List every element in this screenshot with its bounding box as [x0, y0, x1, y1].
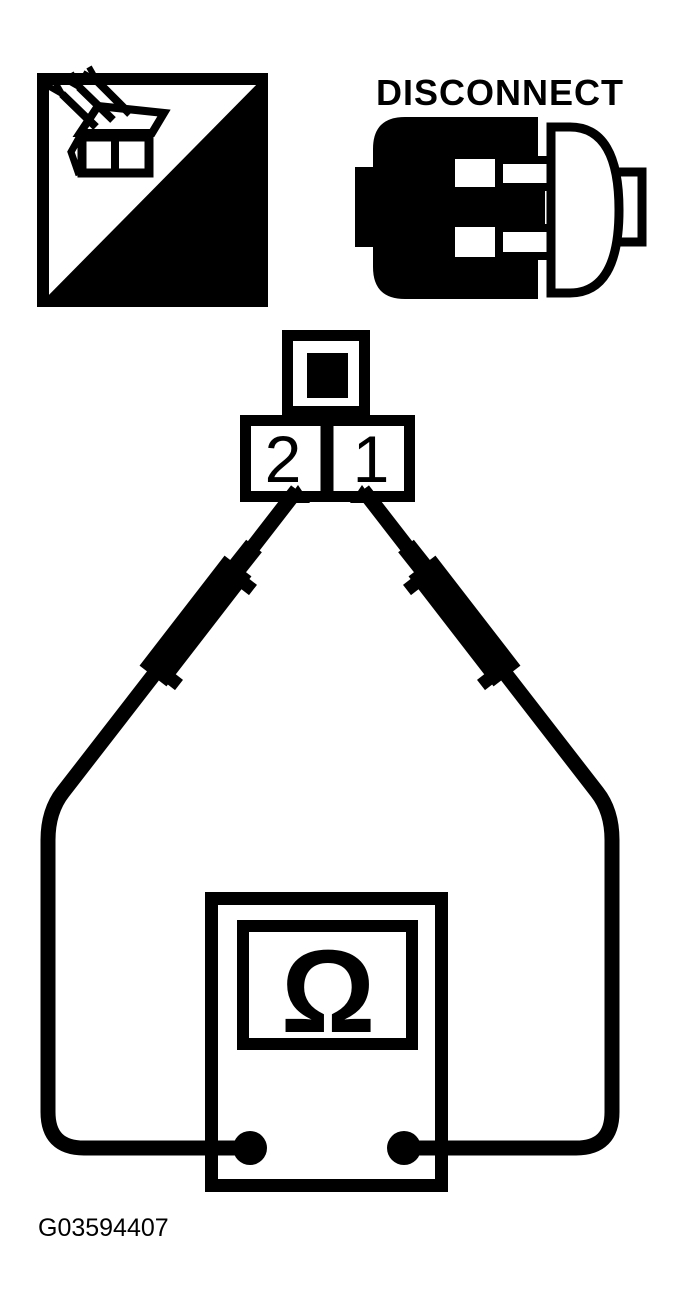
connector-pin-2-label: 2 — [265, 422, 302, 496]
ts-icon: T.S. — [37, 67, 268, 307]
connector-latch — [307, 353, 348, 398]
disconnect-female-half — [355, 117, 545, 299]
connector-under-test: 2 1 — [246, 336, 410, 502]
figure-id: G03594407 — [38, 1214, 169, 1242]
disconnect-icon-label: DISCONNECT — [376, 72, 624, 113]
omega-symbol: Ω — [281, 926, 376, 1058]
wiring-test-diagram: T.S. DISCONNECT 2 1 — [0, 0, 679, 1312]
connector-pin-1-label: 1 — [353, 422, 390, 496]
diagram-page: T.S. DISCONNECT 2 1 — [0, 0, 679, 1312]
ts-icon-label: T.S. — [139, 228, 256, 304]
terminal-right — [387, 1131, 421, 1165]
terminal-left — [233, 1131, 267, 1165]
disconnect-icon: DISCONNECT — [355, 72, 642, 299]
